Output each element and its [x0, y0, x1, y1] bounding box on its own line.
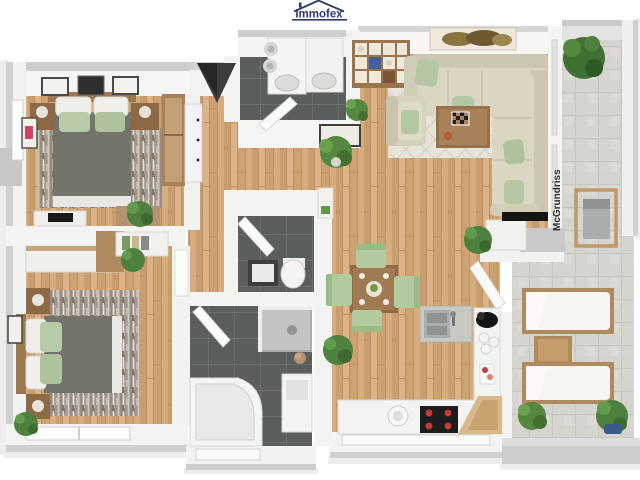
svg-text:Immofex: Immofex	[295, 9, 343, 21]
svg-text:McGrundriss: McGrundriss	[552, 169, 563, 231]
